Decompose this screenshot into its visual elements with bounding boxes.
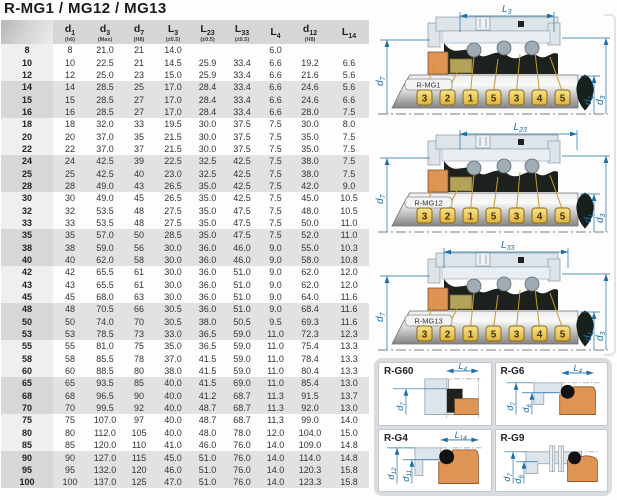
table-cell: 32.5 (191, 155, 224, 167)
table-cell: 30.0 (291, 118, 329, 130)
table-cell: 114.0 (291, 451, 329, 463)
table-cell: 18 (53, 118, 87, 130)
table-row: 282849.04326.535.042.57.542.09.0 (1, 180, 369, 192)
table-cell: 53 (53, 328, 87, 340)
table-cell: 49.0 (87, 180, 123, 192)
table-cell: 78 (123, 353, 155, 365)
table-cell: 73 (123, 328, 155, 340)
callout-badge: 5 (555, 90, 570, 105)
table-cell: 43 (1, 279, 53, 291)
column-header: d12(H8) (291, 20, 329, 44)
table-cell: 11.6 (329, 291, 369, 303)
table-cell: 10.3 (329, 242, 369, 254)
table-row: 101022.52114.525.933.46.619.26.6 (1, 56, 369, 68)
dimension-label: d7 (375, 311, 387, 322)
table-cell: 35.0 (191, 217, 224, 229)
table-cell: 42.5 (224, 192, 260, 204)
table-cell: 21.0 (87, 44, 123, 56)
table-cell: 43 (53, 279, 87, 291)
table-cell: 30 (1, 192, 53, 204)
table-cell: 81.0 (87, 340, 123, 352)
table-cell: 62.0 (87, 254, 123, 266)
table-cell: 27.5 (155, 217, 191, 229)
seal-model-label: R-MG13 (414, 317, 442, 326)
table-cell: 5.6 (329, 81, 369, 93)
table-cell: 21.5 (155, 143, 191, 155)
table-cell: 47.5 (224, 229, 260, 241)
table-cell: 36.0 (191, 266, 224, 278)
table-cell: 9.0 (329, 180, 369, 192)
table-cell: 41.5 (191, 377, 224, 389)
table-cell: 7.5 (260, 167, 291, 179)
seal-model-label: R-MG12 (414, 199, 442, 208)
table-cell: 66 (123, 303, 155, 315)
table-cell: 46.0 (224, 254, 260, 266)
table-cell: 70 (1, 402, 53, 414)
table-cell: 105 (123, 427, 155, 439)
spring-coil (497, 159, 511, 173)
dimension-label: d7 (505, 402, 517, 411)
table-cell: 51.0 (191, 451, 224, 463)
table-cell: 90 (123, 390, 155, 402)
table-cell: 8 (1, 44, 53, 56)
table-cell: 15.8 (329, 464, 369, 476)
table-cell: 33.0 (155, 328, 191, 340)
table-cell: 55.0 (291, 242, 329, 254)
table-cell: 11.6 (329, 316, 369, 328)
table-cell: 42.5 (87, 167, 123, 179)
dimension-label: L4 (459, 363, 468, 373)
table-cell: 12.0 (260, 427, 291, 439)
table-cell: 7.5 (260, 229, 291, 241)
table-cell: 28.5 (87, 81, 123, 93)
svg-text:5: 5 (491, 212, 497, 223)
svg-text:2: 2 (445, 212, 451, 223)
table-cell: 51.0 (191, 464, 224, 476)
table-cell: 32 (53, 204, 87, 216)
table-cell: 62.0 (291, 279, 329, 291)
table-cell: 28 (1, 180, 53, 192)
table-cell: 58.0 (291, 254, 329, 266)
table-cell: 107.0 (87, 414, 123, 426)
table-cell: 55 (1, 340, 53, 352)
table-row: 8821.02114.06.0 (1, 44, 369, 56)
table-cell: 13.7 (329, 390, 369, 402)
svg-text:5: 5 (560, 94, 566, 105)
table-cell: 11.6 (329, 303, 369, 315)
column-header: L3(±0.5) (155, 20, 191, 44)
table-cell: 6.6 (329, 56, 369, 68)
table-cell: 40 (53, 254, 87, 266)
table-cell: 48.0 (291, 204, 329, 216)
table-cell: 12.3 (329, 328, 369, 340)
table-cell: 45 (1, 291, 53, 303)
spring-coil (525, 159, 539, 173)
table-cell: 51.0 (224, 279, 260, 291)
table-cell: 9.0 (260, 242, 291, 254)
table-cell: 24.6 (291, 93, 329, 105)
table-row: 7575107.09740.048.768.711.399.014.0 (1, 414, 369, 426)
table-cell: 76.0 (224, 451, 260, 463)
table-cell: 48 (123, 204, 155, 216)
table-cell: 21.5 (155, 130, 191, 142)
spring-coil (467, 43, 481, 57)
table-cell: 8.0 (329, 118, 369, 130)
callout-badge: 5 (486, 90, 501, 105)
table-row: 555581.07535.036.559.011.075.413.3 (1, 340, 369, 352)
table-cell: 30.5 (155, 303, 191, 315)
page-title: R-MG1 / MG12 / MG13 (4, 0, 167, 17)
seat-panel-rg6: R-G6 L4 d7 d6 (495, 362, 609, 426)
table-cell: 11.0 (260, 328, 291, 340)
table-cell: 14.0 (329, 414, 369, 426)
table-cell: 48.7 (191, 402, 224, 414)
table-cell: 12 (53, 69, 87, 81)
table-cell: 25.9 (191, 56, 224, 68)
column-header: d3(Max) (87, 20, 123, 44)
table-cell: 47.5 (224, 204, 260, 216)
table-cell: 110 (123, 439, 155, 451)
table-cell: 38.0 (155, 365, 191, 377)
table-row: 9090127.011545.051.076.014.0114.014.8 (1, 451, 369, 463)
table-cell: 16 (53, 106, 87, 118)
spring-coil (467, 279, 481, 293)
callout-badge: 5 (486, 208, 501, 223)
table-cell: 7.5 (329, 143, 369, 155)
table-cell: 35.0 (291, 143, 329, 155)
table-cell: 33 (53, 217, 87, 229)
table-cell: 11.3 (260, 390, 291, 402)
table-cell: 68 (53, 390, 87, 402)
callout-badge: 1 (463, 208, 478, 223)
table-cell: 9.0 (260, 279, 291, 291)
table-cell: 33 (123, 118, 155, 130)
table-cell: 7.5 (260, 155, 291, 167)
table-cell: 13.3 (329, 353, 369, 365)
table-row: 252542.54023.032.542.57.538.07.5 (1, 167, 369, 179)
table-cell: 100 (53, 476, 87, 488)
table-cell: 30.0 (191, 118, 224, 130)
seat-variants-panel: R-G60 L4 d7 R-G6 (374, 358, 612, 496)
svg-text:1: 1 (468, 94, 474, 105)
table-cell: 7.5 (260, 143, 291, 155)
table-cell: 41.5 (191, 365, 224, 377)
spring-coil (497, 277, 511, 291)
svg-text:3: 3 (422, 330, 428, 341)
table-cell: 59.0 (224, 340, 260, 352)
table-cell: 45 (123, 192, 155, 204)
table-cell: 59.0 (224, 365, 260, 377)
table-cell: 11.0 (260, 340, 291, 352)
table-cell: 28.4 (191, 81, 224, 93)
set-screw-detail (476, 253, 490, 266)
table-cell: 76.0 (224, 439, 260, 451)
table-row: 686896.59040.041.268.711.391.513.7 (1, 390, 369, 402)
seat-diagram-rg60: L4 d7 (379, 363, 491, 425)
callout-badge: 3 (417, 326, 432, 341)
table-cell: 30.0 (191, 130, 224, 142)
svg-text:5: 5 (560, 330, 566, 341)
table-cell: 62.0 (291, 266, 329, 278)
table-cell: 99.5 (87, 402, 123, 414)
table-cell: 10 (53, 56, 87, 68)
seat-ring (428, 288, 448, 310)
table-cell: 85 (123, 377, 155, 389)
table-row: 161628.52717.028.433.46.628.07.5 (1, 106, 369, 118)
table-cell: 17.0 (155, 81, 191, 93)
table-cell: 97 (123, 414, 155, 426)
table-cell: 6.6 (260, 56, 291, 68)
table-cell: 70.5 (87, 303, 123, 315)
table-cell: 22 (1, 143, 53, 155)
table-cell: 61 (123, 279, 155, 291)
seal-diagram-r-mg12: R-MG12 3 2 1 5 3 4 5 L23 d7 d1 (372, 120, 612, 238)
table-cell: 23 (123, 69, 155, 81)
table-cell: 28.5 (87, 93, 123, 105)
table-cell: 60 (1, 365, 53, 377)
table-cell: 120.3 (291, 464, 329, 476)
table-cell: 30.0 (155, 291, 191, 303)
table-cell: 20 (1, 130, 53, 142)
table-cell: 95 (1, 464, 53, 476)
table-cell: 16 (1, 106, 53, 118)
table-corner-cell (1, 20, 53, 44)
primary-ring (450, 295, 472, 309)
table-cell: 43 (123, 180, 155, 192)
seat-ring (428, 170, 448, 192)
callout-badge: 4 (532, 208, 547, 223)
table-cell: 85.5 (87, 353, 123, 365)
table-cell: 30 (53, 192, 87, 204)
table-cell: 45.0 (291, 192, 329, 204)
table-cell: 109.0 (291, 439, 329, 451)
table-cell: 35 (53, 229, 87, 241)
table-cell: 63 (123, 291, 155, 303)
table-row: 8080112.010540.048.078.012.0104.015.0 (1, 427, 369, 439)
table-cell: 25 (53, 167, 87, 179)
table-cell: 28.4 (191, 93, 224, 105)
table-cell: 69.3 (291, 316, 329, 328)
table-row: 121225.02315.025.933.46.621.65.6 (1, 69, 369, 81)
callout-badge: 3 (509, 326, 524, 341)
table-cell: 75 (53, 414, 87, 426)
svg-text:5: 5 (560, 212, 566, 223)
table-cell: 68.0 (87, 291, 123, 303)
table-cell: 28.4 (191, 106, 224, 118)
table-cell: 6.6 (260, 81, 291, 93)
table-cell: 41.0 (155, 439, 191, 451)
table-cell: 80 (123, 365, 155, 377)
table-cell: 68.4 (291, 303, 329, 315)
table-cell: 36.0 (191, 291, 224, 303)
callout-badge: 5 (555, 326, 570, 341)
table-cell: 56 (123, 242, 155, 254)
dimension-label: d12 (386, 467, 398, 480)
dimension-label: d6 (513, 474, 525, 483)
table-cell: 65.5 (87, 279, 123, 291)
table-cell: 33.4 (224, 93, 260, 105)
table-cell: 70 (53, 402, 87, 414)
table-cell: 68 (1, 390, 53, 402)
table-cell: 26.5 (155, 180, 191, 192)
table-cell: 65 (53, 377, 87, 389)
table-cell: 40.0 (155, 402, 191, 414)
table-cell: 6.6 (329, 93, 369, 105)
table-cell: 85.4 (291, 377, 329, 389)
table-cell: 14.8 (329, 439, 369, 451)
table-cell: 23.0 (155, 167, 191, 179)
table-cell: 11.0 (329, 229, 369, 241)
table-cell: 58 (123, 254, 155, 266)
table-row: 424265.56130.036.051.09.062.012.0 (1, 266, 369, 278)
dimension-table: d1(h6)d3(Max)d7(H8)L3(±0.5)L23(±0.5)L33(… (1, 20, 369, 488)
table-cell: 25 (123, 81, 155, 93)
table-cell: 12.0 (329, 266, 369, 278)
table-cell: 50.0 (291, 217, 329, 229)
callout-badge: 3 (509, 90, 524, 105)
table-row: 151528.52717.028.433.46.624.66.6 (1, 93, 369, 105)
svg-text:3: 3 (514, 94, 520, 105)
table-cell: 70 (123, 316, 155, 328)
table-cell: 50 (53, 316, 87, 328)
table-header: d1(h6)d3(Max)d7(H8)L3(±0.5)L23(±0.5)L33(… (1, 20, 369, 44)
table-cell: 10.8 (329, 254, 369, 266)
svg-text:2: 2 (445, 94, 451, 105)
table-cell: 37.0 (87, 130, 123, 142)
table-cell: 76.0 (224, 476, 260, 488)
table-cell: 91.5 (291, 390, 329, 402)
table-row: 535378.57333.036.559.011.072.312.3 (1, 328, 369, 340)
table-cell (291, 44, 329, 56)
table-cell: 38 (53, 242, 87, 254)
table-cell: 99.0 (291, 414, 329, 426)
table-cell: 11.0 (260, 365, 291, 377)
table-cell: 50.5 (224, 316, 260, 328)
svg-text:1: 1 (468, 330, 474, 341)
table-cell: 37.5 (224, 143, 260, 155)
table-cell: 7.5 (260, 130, 291, 142)
seat-ring (428, 52, 448, 74)
table-cell: 35 (1, 229, 53, 241)
table-cell: 48.7 (191, 414, 224, 426)
table-cell: 35.0 (191, 180, 224, 192)
dimension-label: d6 (520, 404, 532, 413)
table-cell: 48.0 (191, 427, 224, 439)
svg-text:5: 5 (491, 330, 497, 341)
table-cell: 7.5 (329, 155, 369, 167)
table-cell: 7.5 (260, 192, 291, 204)
table-cell: 37 (123, 143, 155, 155)
table-cell: 69.0 (224, 377, 260, 389)
seal-cross-section-diagrams: R-MG1 3 2 1 5 3 4 5 L3 d7 d1 (372, 2, 612, 356)
table-cell: 92 (123, 402, 155, 414)
table-cell: 41.5 (191, 353, 224, 365)
table-cell: 30.0 (155, 279, 191, 291)
table-cell: 22 (53, 143, 87, 155)
table-cell: 20 (53, 130, 87, 142)
table-cell: 27 (123, 106, 155, 118)
column-header: L4 (260, 20, 291, 44)
table-row: 484870.56630.536.051.09.068.411.6 (1, 303, 369, 315)
callout-badge: 1 (463, 326, 478, 341)
table-cell: 13.0 (329, 402, 369, 414)
table-cell: 40.0 (155, 427, 191, 439)
table-cell: 88.5 (87, 365, 123, 377)
table-cell: 14 (53, 81, 87, 93)
table-cell: 13.0 (329, 377, 369, 389)
table-cell: 68.7 (224, 390, 260, 402)
table-cell: 42.0 (291, 180, 329, 192)
table-row: 404062.05830.036.046.09.058.010.8 (1, 254, 369, 266)
svg-text:3: 3 (514, 330, 520, 341)
table-cell: 13.3 (329, 365, 369, 377)
table-cell: 72.3 (291, 328, 329, 340)
seat-diagram-rg4: L14 d12 d11 (379, 430, 491, 492)
table-cell (191, 44, 224, 56)
callout-badge: 3 (417, 90, 432, 105)
table-cell: 46.0 (155, 464, 191, 476)
table-cell: 35.0 (291, 130, 329, 142)
table-row: 323253.54827.535.047.57.548.010.5 (1, 204, 369, 216)
table-cell: 24 (53, 155, 87, 167)
table-cell: 28.5 (87, 106, 123, 118)
table-row: 353557.05028.535.047.57.552.011.0 (1, 229, 369, 241)
table-cell: 46.0 (224, 242, 260, 254)
svg-text:4: 4 (537, 212, 543, 223)
table-cell: 38.0 (191, 316, 224, 328)
table-cell: 35.0 (155, 340, 191, 352)
table-cell: 30.0 (155, 266, 191, 278)
table-cell: 68.7 (224, 414, 260, 426)
table-cell: 14.0 (260, 464, 291, 476)
table-cell (224, 44, 260, 56)
spring-coil (497, 41, 511, 55)
table-cell: 47.0 (155, 476, 191, 488)
table-row: 181832.03319.530.037.57.530.08.0 (1, 118, 369, 130)
table-cell: 10 (1, 56, 53, 68)
table-row: 303049.04526.535.042.57.545.010.5 (1, 192, 369, 204)
table-cell: 32.0 (87, 118, 123, 130)
table-cell: 51.0 (224, 266, 260, 278)
svg-text:3: 3 (422, 212, 428, 223)
seat-diagram-rg9: d7 d6 (496, 430, 608, 492)
table-cell: 14.0 (260, 439, 291, 451)
table-row: 454568.06330.036.051.09.064.011.6 (1, 291, 369, 303)
table-cell: 15.0 (155, 69, 191, 81)
table-cell: 33.4 (224, 56, 260, 68)
table-cell: 33.4 (224, 106, 260, 118)
table-cell: 15 (1, 93, 53, 105)
table-cell: 115 (123, 451, 155, 463)
table-cell: 40.0 (155, 377, 191, 389)
table-cell: 8 (53, 44, 87, 56)
table-cell: 10.5 (329, 192, 369, 204)
table-cell: 32 (1, 204, 53, 216)
column-header: L23(±0.5) (191, 20, 224, 44)
table-cell: 37.5 (224, 130, 260, 142)
table-cell: 21.6 (291, 69, 329, 81)
table-cell: 28.0 (291, 106, 329, 118)
table-cell: 59.0 (224, 353, 260, 365)
table-cell: 96.5 (87, 390, 123, 402)
table-cell: 125 (123, 476, 155, 488)
table-cell: 65.5 (87, 266, 123, 278)
table-cell: 93.5 (87, 377, 123, 389)
svg-text:4: 4 (537, 94, 543, 105)
table-cell: 40 (123, 167, 155, 179)
table-row: 222237.03721.530.037.57.535.07.5 (1, 143, 369, 155)
table-cell: 27 (123, 93, 155, 105)
